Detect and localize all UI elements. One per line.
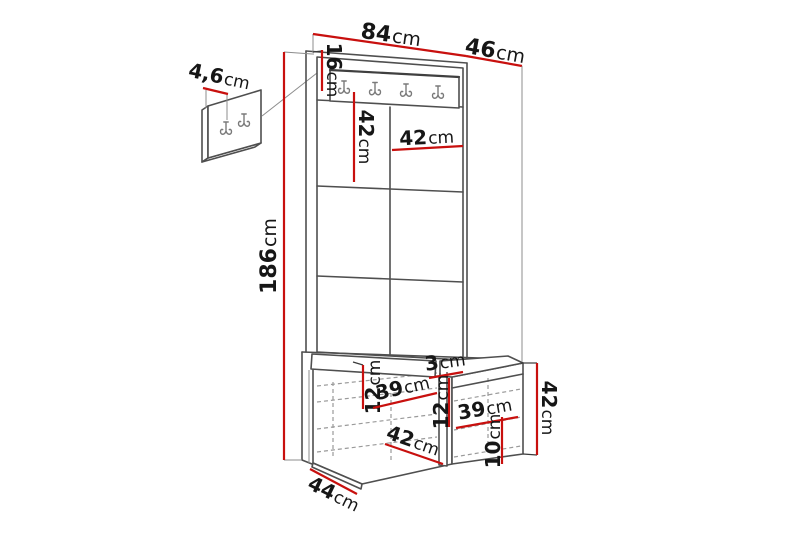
detail-callout-line — [262, 73, 317, 116]
dimension-diagram: 84cm 46cm 186cm 16cm 42cm 42cm — [0, 0, 800, 533]
dim-label-tile-height: 42cm — [354, 110, 378, 165]
dim-bench-height: 42cm — [521, 363, 561, 455]
dim-plinth-height: 10cm — [481, 414, 505, 469]
dim-top-depth: 46cm — [463, 34, 527, 362]
dim-label-rail-height: 16cm — [322, 43, 346, 98]
dim-label-mid-opening-height: 12cm — [429, 375, 453, 430]
detail-panel-side-face — [202, 106, 208, 162]
dim-label-hook-panel-depth: 4,6cm — [186, 58, 252, 94]
diagram-canvas: 84cm 46cm 186cm 16cm 42cm 42cm — [0, 0, 800, 533]
dim-label-total-height: 186cm — [257, 218, 282, 294]
dim-label-bench-height: 42cm — [537, 381, 561, 436]
dim-label-panel-width: 84cm — [359, 19, 422, 52]
dim-mid-opening-height: 12cm — [429, 375, 453, 430]
dim-label-top-depth: 46cm — [463, 34, 527, 69]
hook-rail — [330, 70, 459, 108]
dim-label-plinth-height: 10cm — [481, 414, 505, 469]
